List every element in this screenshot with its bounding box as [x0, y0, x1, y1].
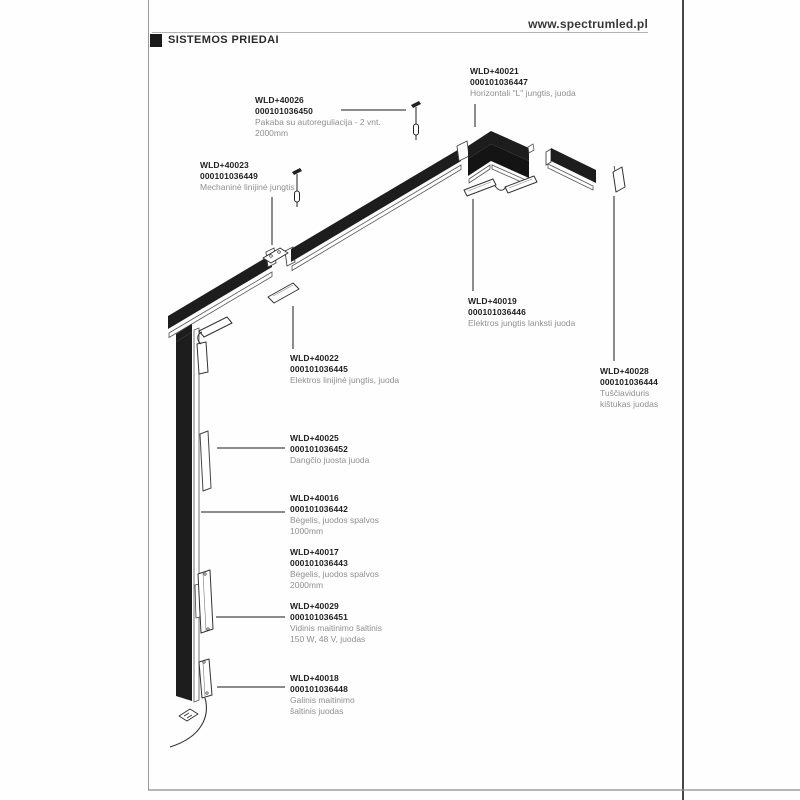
rail-lower-segment [168, 254, 272, 329]
end-plug-tab [614, 166, 615, 171]
part-code: WLD+40028 [600, 366, 658, 377]
part-sku: 000101036450 [255, 106, 381, 117]
part-label-wld40016: WLD+40016 000101036442 Bėgelis, juodos s… [290, 493, 379, 537]
part-sku: 000101036444 [600, 377, 658, 388]
flex-junction-wire [495, 186, 506, 190]
part-sku: 000101036445 [290, 364, 399, 375]
suspension-ceiling-mount [411, 101, 421, 108]
part-label-wld40021: WLD+40021 000101036447 Horizontali "L" j… [470, 66, 576, 99]
part-code: WLD+40026 [255, 95, 381, 106]
mechanical-linear-connector [263, 248, 288, 263]
part-code: WLD+40025 [290, 433, 369, 444]
part-sku: 000101036449 [200, 171, 295, 182]
part-label-wld40019: WLD+40019 000101036446 Elektros jungtis … [468, 296, 575, 329]
part-sku: 000101036443 [290, 558, 379, 569]
rail-stub-cross-section [546, 149, 551, 165]
part-label-wld40023: WLD+40023 000101036449 Mechaninė linijin… [200, 160, 295, 193]
part-desc: Pakaba su autoreguliacija - 2 vnt. [255, 117, 381, 128]
cover-strip [200, 431, 211, 491]
part-sku: 000101036451 [290, 612, 382, 623]
part-desc: 2000mm [255, 128, 381, 139]
rail-upper-right-cross-section [457, 141, 469, 161]
part-desc: Bėgelis, juodos spalvos [290, 515, 379, 526]
part-code: WLD+40016 [290, 493, 379, 504]
part-code: WLD+40022 [290, 353, 399, 364]
part-label-wld40022: WLD+40022 000101036445 Elektros linijinė… [290, 353, 399, 386]
part-label-wld40029: WLD+40029 000101036451 Vidinis maitinimo… [290, 601, 382, 645]
part-desc: šaltinis juodas [290, 706, 355, 717]
part-desc: 150 W, 48 V, juodas [290, 634, 382, 645]
power-cord [170, 698, 206, 747]
rail-upper-segment [291, 148, 461, 262]
hollow-end-plug [613, 166, 625, 192]
suspension-icon [411, 101, 421, 140]
suspension-gripper [295, 191, 300, 202]
catalog-page: www.spectrumled.pl SISTEMOS PRIEDAI [0, 0, 800, 800]
part-sku: 000101036442 [290, 504, 379, 515]
part-desc: Tuščiaviduris [600, 388, 658, 399]
part-desc: Galinis maitinimo [290, 695, 355, 706]
part-desc: 2000mm [290, 580, 379, 591]
part-label-wld40017: WLD+40017 000101036443 Bėgelis, juodos s… [290, 547, 379, 591]
part-label-wld40018: WLD+40018 000101036448 Galinis maitinimo… [290, 673, 355, 717]
part-desc: Vidinis maitinimo šaltinis [290, 623, 382, 634]
part-label-wld40026: WLD+40026 000101036450 Pakaba su autoreg… [255, 95, 381, 139]
mounting-plate-body [179, 709, 198, 721]
part-sku: 000101036446 [468, 307, 575, 318]
flex-junction-pod [199, 317, 232, 337]
mounting-plate [179, 709, 198, 721]
part-desc: Bėgelis, juodos spalvos [290, 569, 379, 580]
part-code: WLD+40023 [200, 160, 295, 171]
flex-junction-pod [197, 342, 208, 374]
part-code: WLD+40021 [470, 66, 576, 77]
vertical-rail-strip [194, 328, 199, 702]
part-sku: 000101036452 [290, 444, 369, 455]
vertical-rail [176, 332, 192, 701]
end-power-supply-body [199, 659, 212, 698]
part-sku: 000101036448 [290, 684, 355, 695]
part-desc: Horizontali "L" jungtis, juoda [470, 88, 576, 99]
exploded-diagram [0, 0, 800, 800]
rail-upper-flange [292, 165, 461, 271]
part-desc: kištukas juodas [600, 399, 658, 410]
part-label-wld40025: WLD+40025 000101036452 Dangčio juosta ju… [290, 433, 369, 466]
part-sku: 000101036447 [470, 77, 576, 88]
part-code: WLD+40019 [468, 296, 575, 307]
part-code: WLD+40018 [290, 673, 355, 684]
mechanical-connector-plate [263, 248, 288, 263]
part-code: WLD+40029 [290, 601, 382, 612]
corner-end-tab [528, 144, 534, 153]
part-desc: 1000mm [290, 526, 379, 537]
part-desc: Elektros linijinė jungtis, juoda [290, 375, 399, 386]
part-desc: Mechaninė linijinė jungtis [200, 182, 295, 193]
part-desc: Elektros jungtis lanksti juoda [468, 318, 575, 329]
l-corner-junction [468, 131, 534, 185]
suspension-gripper [414, 124, 419, 135]
part-label-wld40028: WLD+40028 000101036444 Tuščiaviduris kiš… [600, 366, 658, 410]
part-desc: Dangčio juosta juoda [290, 455, 369, 466]
flexible-electric-junction [197, 317, 232, 374]
electric-linear-connector [268, 283, 299, 303]
part-code: WLD+40017 [290, 547, 379, 558]
electric-connector-body [268, 283, 299, 303]
